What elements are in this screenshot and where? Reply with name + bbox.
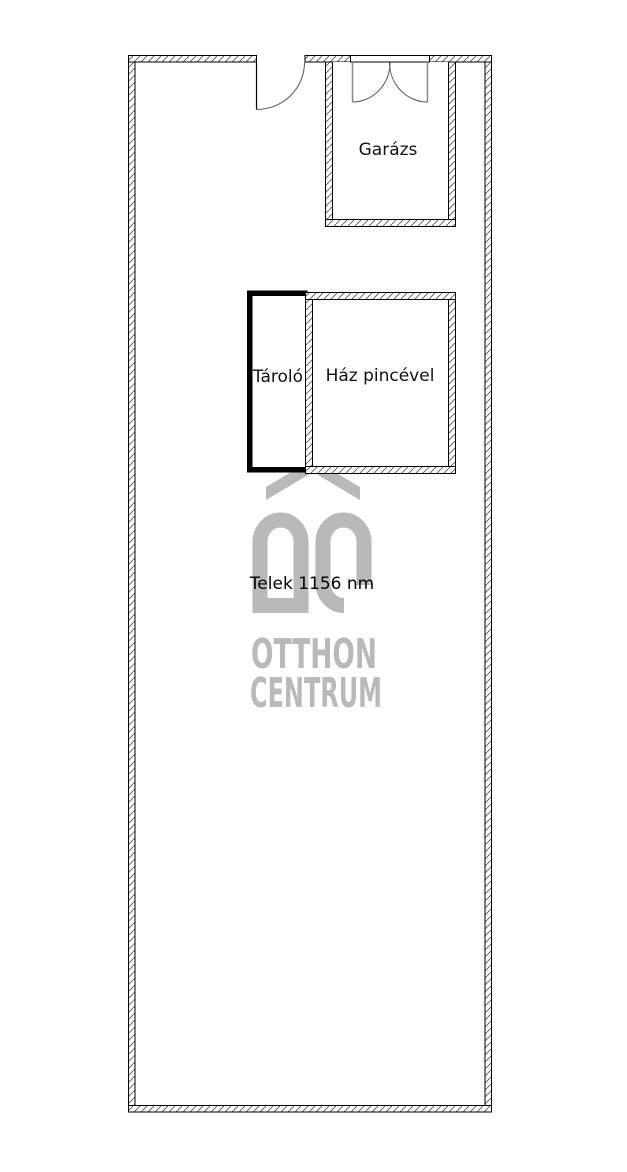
room-label-garage: Garázs	[359, 140, 418, 160]
room-label-house: Ház pincével	[326, 366, 435, 386]
labels-layer: Garázs Tároló Ház pincével Telek 1156 nm	[0, 0, 627, 1172]
floor-plan-page: OTTHON CENTRUM	[0, 0, 627, 1172]
room-label-storage: Tároló	[253, 367, 303, 387]
plot-size-label: Telek 1156 nm	[250, 574, 374, 594]
